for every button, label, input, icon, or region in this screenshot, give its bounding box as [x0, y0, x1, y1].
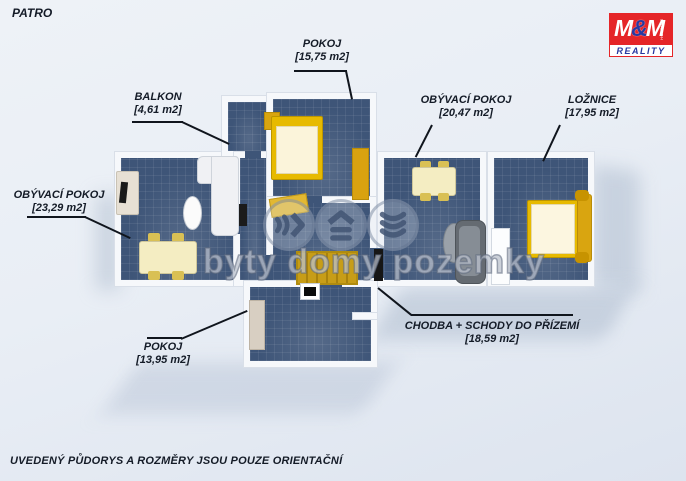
- logo-m1: M: [614, 15, 631, 41]
- room-label-obyvaci-right: OBÝVACÍ POKOJ [20,47 m2]: [421, 94, 512, 120]
- door-opening: [245, 151, 261, 158]
- room-balkon-floor: [228, 102, 266, 151]
- bed-post: [575, 190, 589, 201]
- cabinet: [249, 300, 265, 350]
- leader-line: [181, 310, 248, 340]
- room-area: [23,29 m2]: [14, 202, 105, 215]
- room-label-loznice: LOŽNICE [17,95 m2]: [565, 94, 619, 120]
- chimney-core: [304, 287, 316, 296]
- bed-post: [575, 252, 589, 263]
- building-shadow: [102, 362, 398, 414]
- logo-ampersand: &: [631, 15, 646, 41]
- open-door-dark: [239, 204, 247, 226]
- chair: [172, 271, 184, 280]
- room-name: LOŽNICE: [565, 94, 619, 107]
- room-label-chodba: CHODBA + SCHODY DO PŘÍZEMÍ [18,59 m2]: [405, 320, 580, 346]
- room-label-balkon: BALKON [4,61 m2]: [134, 91, 182, 117]
- room-name: OBÝVACÍ POKOJ: [14, 189, 105, 202]
- chair: [438, 193, 449, 201]
- coffee-table: [183, 196, 202, 230]
- chair: [420, 193, 431, 201]
- leader-line: [27, 216, 86, 218]
- room-label-pokoj-bottom: POKOJ [13,95 m2]: [136, 341, 190, 367]
- wardrobe: [352, 148, 369, 200]
- room-area: [15,75 m2]: [295, 51, 349, 64]
- disclaimer-text: UVEDENÝ PŮDORYS A ROZMĚRY JSOU POUZE ORI…: [10, 455, 342, 467]
- room-area: [20,47 m2]: [421, 107, 512, 120]
- chair: [148, 271, 160, 280]
- room-area: [17,95 m2]: [565, 107, 619, 120]
- room-area: [18,59 m2]: [405, 333, 580, 346]
- logo-top: M&M HOLDING: [609, 13, 673, 44]
- leader-line: [132, 121, 183, 123]
- room-name: OBÝVACÍ POKOJ: [421, 94, 512, 107]
- wall-stub: [352, 312, 378, 320]
- room-label-pokoj-top: POKOJ [15,75 m2]: [295, 38, 349, 64]
- room-name: BALKON: [134, 91, 182, 104]
- logo-reality-text: REALITY: [609, 44, 673, 57]
- bed-mattress: [276, 126, 318, 174]
- room-name: POKOJ: [136, 341, 190, 354]
- room-area: [13,95 m2]: [136, 354, 190, 367]
- floorplan-page: byty domy pozemky PATRO POKOJ [15,75 m2]…: [0, 0, 686, 481]
- watermark-text: byty domy pozemky: [203, 243, 485, 282]
- leader-line: [294, 70, 347, 72]
- dining-table: [139, 241, 197, 274]
- building-shadow: [592, 165, 640, 292]
- room-name: CHODBA + SCHODY DO PŘÍZEMÍ: [405, 320, 580, 333]
- mm-reality-logo: M&M HOLDING REALITY: [609, 13, 673, 57]
- dining-table: [412, 167, 456, 196]
- room-label-obyvaci-left: OBÝVACÍ POKOJ [23,29 m2]: [14, 189, 105, 215]
- leader-line: [411, 314, 573, 316]
- room-area: [4,61 m2]: [134, 104, 182, 117]
- leader-line: [147, 337, 182, 339]
- room-name: POKOJ: [295, 38, 349, 51]
- logo-holding-text: HOLDING: [660, 18, 664, 40]
- floor-title: PATRO: [12, 6, 52, 20]
- corner-sofa: [211, 156, 239, 236]
